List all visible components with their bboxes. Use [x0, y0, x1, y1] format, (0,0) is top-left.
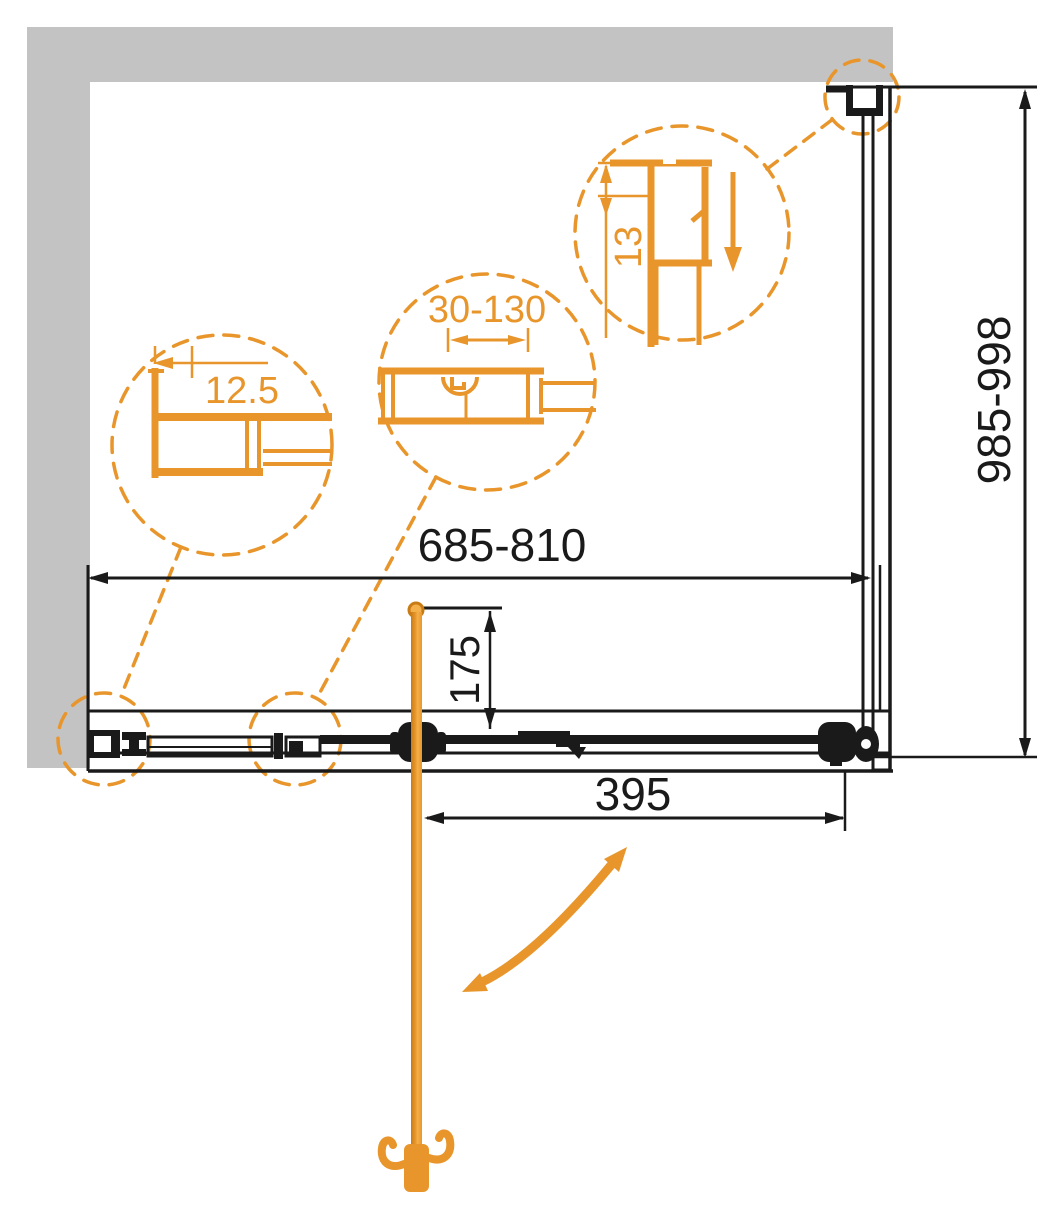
right-roller-assembly — [818, 722, 879, 766]
detail-middle-profile: 30-130 — [378, 289, 596, 421]
detail-middle-label: 30-130 — [428, 289, 546, 331]
dimension-depth: 985-998 — [860, 89, 1037, 758]
dimension-door-opening: 395 — [424, 768, 845, 831]
swing-direction-arrow-icon — [462, 847, 627, 992]
dimension-arrow-icon — [825, 812, 845, 824]
detail-left-label: 12.5 — [205, 370, 279, 412]
handle-bar — [411, 612, 422, 1146]
detail-right-label: 13 — [608, 226, 650, 268]
track-left-wall-profile — [88, 730, 146, 758]
dimension-arrow-icon — [1019, 738, 1031, 758]
slide-direction-arrow-icon — [724, 172, 742, 272]
dimension-arrow-icon — [484, 708, 496, 728]
shower-enclosure-technical-drawing: 12.5 30-130 — [0, 0, 1063, 1209]
handle-offset-label: 175 — [441, 635, 488, 705]
dimension-arrow-icon — [851, 572, 871, 584]
towel-bar-handle — [382, 603, 451, 1192]
dimension-arrow-icon — [1019, 89, 1031, 109]
drawing-canvas: 12.5 30-130 — [0, 0, 1063, 1209]
track-adjustment-profile — [148, 733, 320, 759]
depth-range-label: 985-998 — [968, 316, 1020, 485]
dimension-width: 685-810 — [88, 519, 871, 584]
top-wall-profile — [846, 85, 883, 116]
dimension-arrow-icon — [424, 812, 444, 824]
detail-left-profile: 12.5 — [148, 346, 332, 478]
width-range-label: 685-810 — [418, 519, 587, 571]
dimension-arrow-icon — [88, 572, 108, 584]
enclosure-plan — [88, 85, 1037, 771]
door-opening-label: 395 — [595, 768, 672, 820]
leader-line-right — [767, 119, 833, 169]
dimension-arrow-icon — [484, 612, 496, 632]
detail-circle-left — [112, 335, 332, 555]
leader-line-left — [121, 547, 181, 696]
